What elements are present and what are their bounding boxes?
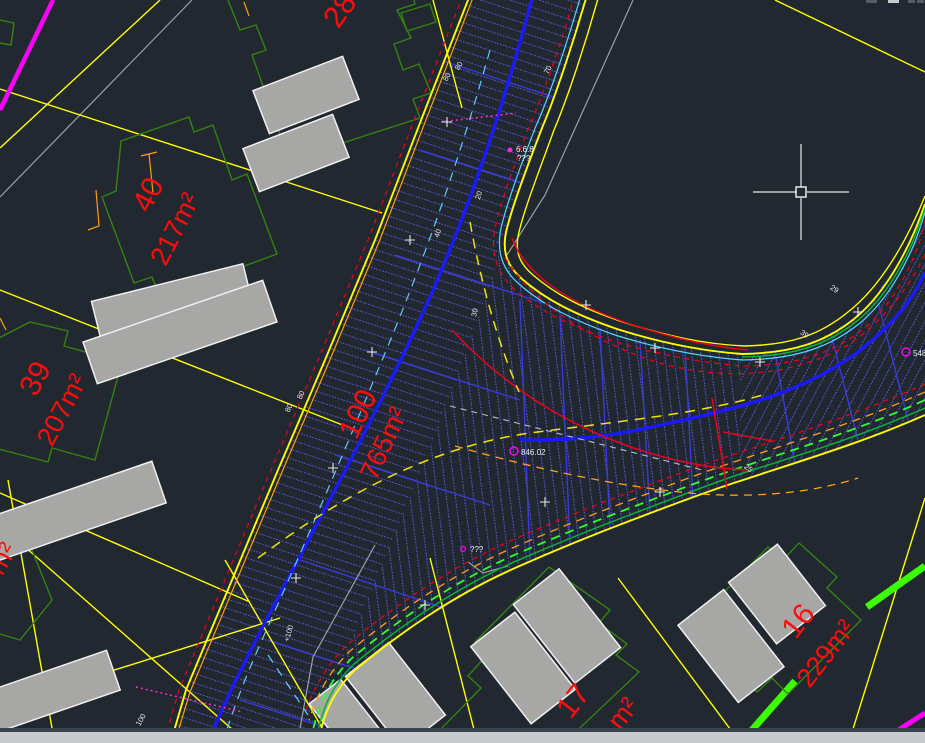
point-annotation: 846.02 [521,448,546,457]
point-annotation: ??? [470,545,484,554]
model-space-canvas[interactable]: 28 40 217m² 39 207m² 100 765m² 16 229m² … [0,0,925,743]
point-annotation: 6.6.8 [516,145,534,154]
viewport-control-fragment[interactable] [888,0,899,3]
horizontal-scrollbar[interactable] [0,732,925,743]
viewport-control-fragment[interactable] [908,0,915,3]
viewport-control-fragment[interactable] [866,0,877,3]
viewport-control-fragment[interactable] [917,0,924,3]
cad-window: 28 40 217m² 39 207m² 100 765m² 16 229m² … [0,0,925,743]
point-annotation: 548 [913,349,925,358]
point-marker-dot [508,148,513,153]
point-annotation: ??? [517,154,531,163]
